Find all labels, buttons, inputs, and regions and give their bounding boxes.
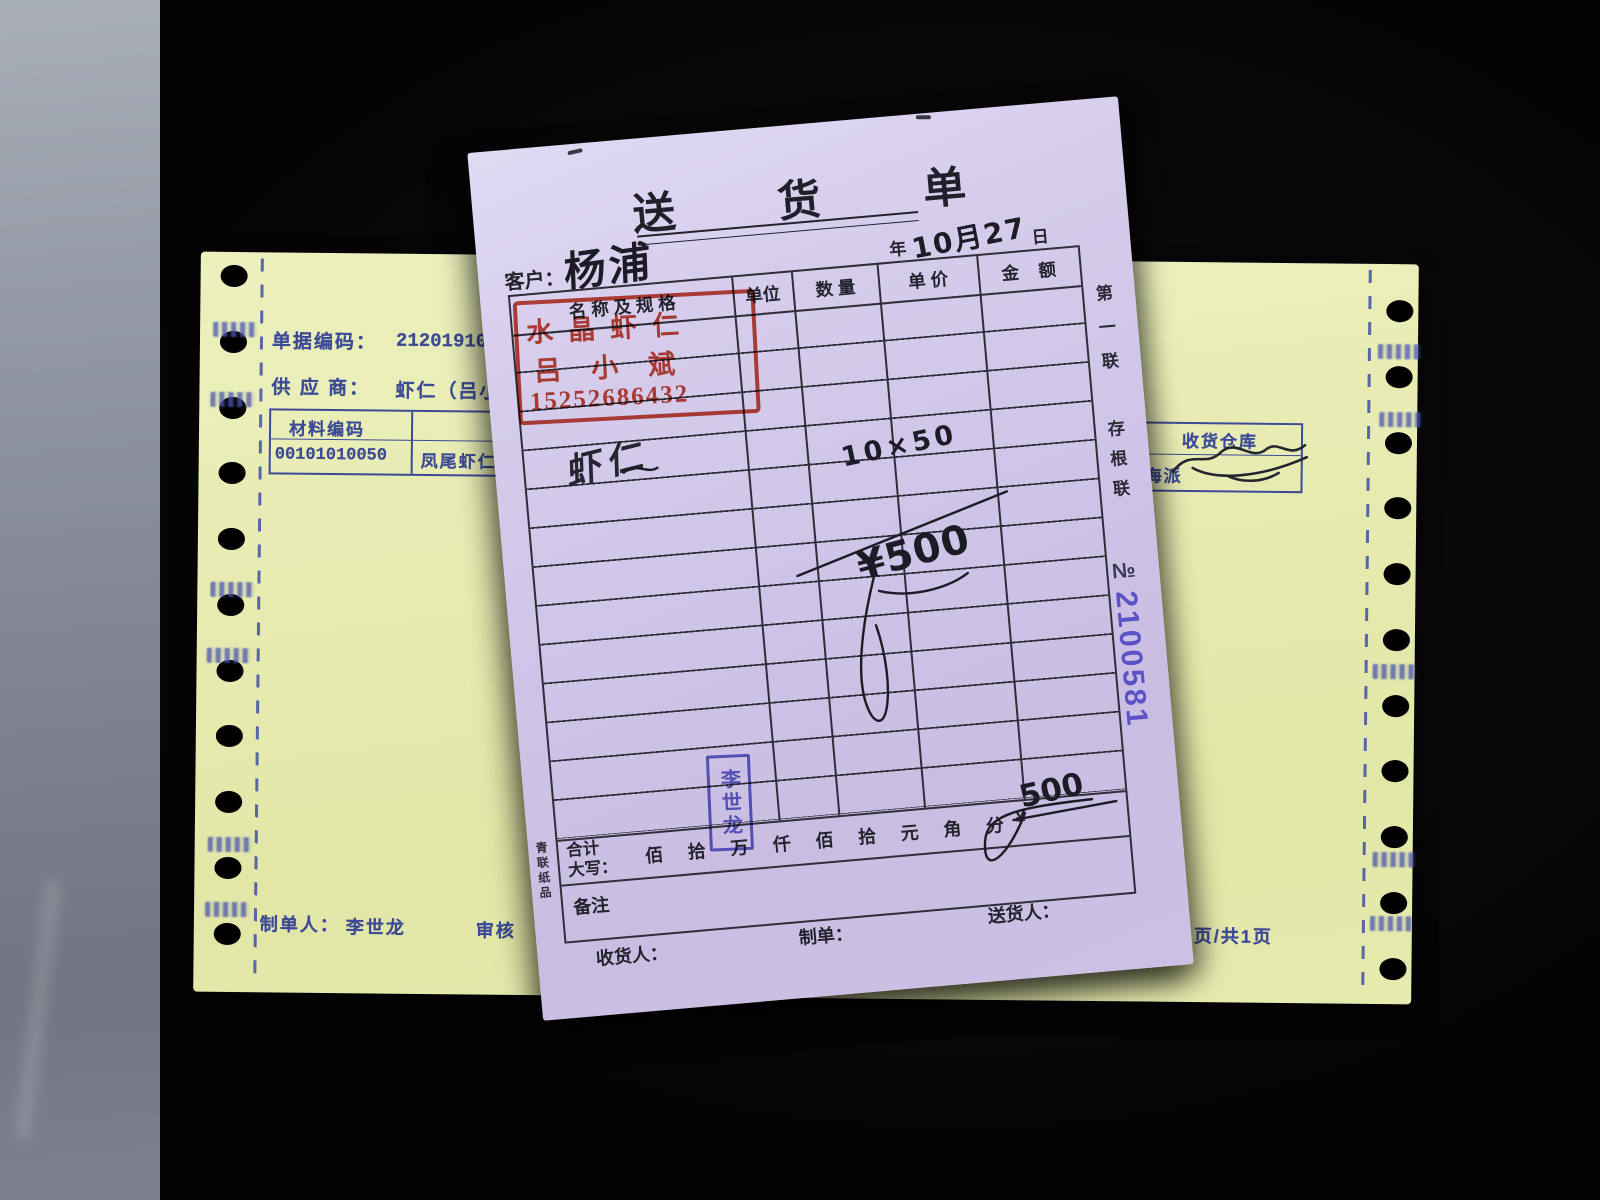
blue-stamp-name: 李世龙: [714, 768, 746, 838]
ink-smudge: [208, 837, 252, 852]
receiver-label: 收货人：: [595, 939, 669, 971]
unit-char: 佰: [814, 826, 834, 853]
unit-char: 分: [985, 811, 1005, 838]
punch-hole: [218, 462, 245, 484]
year-label: 年: [888, 234, 907, 260]
material-code-header: 材料编码: [289, 415, 365, 441]
form-maker-value: 李世龙: [346, 913, 406, 940]
copy-label-stub: 存根联: [1101, 419, 1134, 511]
totals-label: 合计 大写：: [566, 837, 619, 881]
ink-smudge: [213, 322, 257, 337]
remarks-label: 备注: [572, 891, 610, 920]
punch-hole: [1383, 563, 1410, 585]
ink-smudge: [210, 392, 254, 407]
unit-char: 拾: [687, 837, 707, 864]
background-wall-strip: [0, 0, 160, 1200]
material-name-value: 凤尾虾仁: [421, 447, 497, 473]
doc-code-label: 单据编码：: [272, 326, 377, 354]
form-page-info: 页/共1页: [1194, 922, 1273, 949]
punch-hole: [1381, 826, 1408, 848]
punch-hole: [217, 594, 244, 616]
supplier-value: 虾仁（吕小: [395, 376, 500, 404]
unit-char: 仟: [772, 830, 792, 857]
no-symbol: №: [1111, 559, 1136, 588]
unit-char: 佰: [644, 841, 664, 868]
unit-char: 角: [942, 815, 962, 842]
punch-hole: [1382, 695, 1409, 717]
deliverer-label: 送货人：: [987, 896, 1061, 928]
punch-hole: [221, 265, 248, 287]
perforation-line-right: [1361, 270, 1372, 998]
day-label: 日: [1030, 222, 1049, 248]
copy-label-first: 第一联: [1089, 283, 1123, 387]
punch-hole: [1384, 497, 1411, 519]
form-audit-label: 审核: [476, 917, 516, 943]
red-company-stamp: 水晶虾仁 吕小斌 15252686432: [513, 289, 761, 425]
punch-hole: [216, 660, 243, 682]
ink-smudge: [1370, 916, 1414, 931]
punch-hole: [1386, 366, 1413, 388]
punch-hole: [1379, 958, 1406, 980]
ink-smudge: [1378, 344, 1422, 359]
punch-hole: [1386, 300, 1413, 322]
maker-label: 制单：: [798, 920, 854, 951]
unit-char: 拾: [857, 822, 877, 849]
punch-hole: [214, 857, 241, 879]
punch-hole: [216, 725, 243, 747]
unit-char: 元: [900, 818, 920, 845]
ink-smudge: [205, 902, 249, 917]
ink-smudge: [207, 648, 251, 663]
material-table-divider: [411, 412, 413, 474]
ink-smudge: [1373, 852, 1417, 867]
punch-hole: [218, 528, 245, 550]
totals-label-line2: 大写：: [567, 857, 618, 881]
delivery-note-sheet: 送 货 单 客户： 杨浦 年 10月27 日 名 称 及 规 格 单位 数 量 …: [467, 96, 1193, 1021]
warehouse-box: 收货仓库 海派: [1136, 421, 1303, 493]
note-footer: 收货人： 制单： 送货人：: [467, 96, 1118, 153]
warehouse-signature-scribble: [1166, 432, 1317, 492]
ink-smudge: [1372, 664, 1416, 679]
blue-name-stamp: 李世龙: [706, 754, 754, 852]
ink-smudge: [210, 582, 254, 597]
staple-mark: [916, 115, 931, 119]
staple-mark: [567, 148, 583, 155]
punch-hole: [215, 791, 242, 813]
form-maker-label: 制单人：: [260, 910, 340, 937]
photo-stage: 单据编码： 2120191027 供 应 商： 虾仁（吕小 材料编码 材料 00…: [0, 0, 1600, 1200]
punch-hole: [1381, 760, 1408, 782]
punch-hole: [1385, 432, 1412, 454]
material-code-value: 00101010050: [275, 445, 387, 465]
printer-mark: 青联纸品: [533, 841, 555, 902]
wall-highlight-streak: [14, 880, 62, 1140]
punch-hole: [214, 923, 241, 945]
punch-hole: [1380, 892, 1407, 914]
perforation-line-left: [253, 258, 264, 986]
punch-hole: [1383, 629, 1410, 651]
ink-smudge: [1379, 412, 1423, 427]
supplier-label: 供 应 商：: [271, 372, 370, 400]
